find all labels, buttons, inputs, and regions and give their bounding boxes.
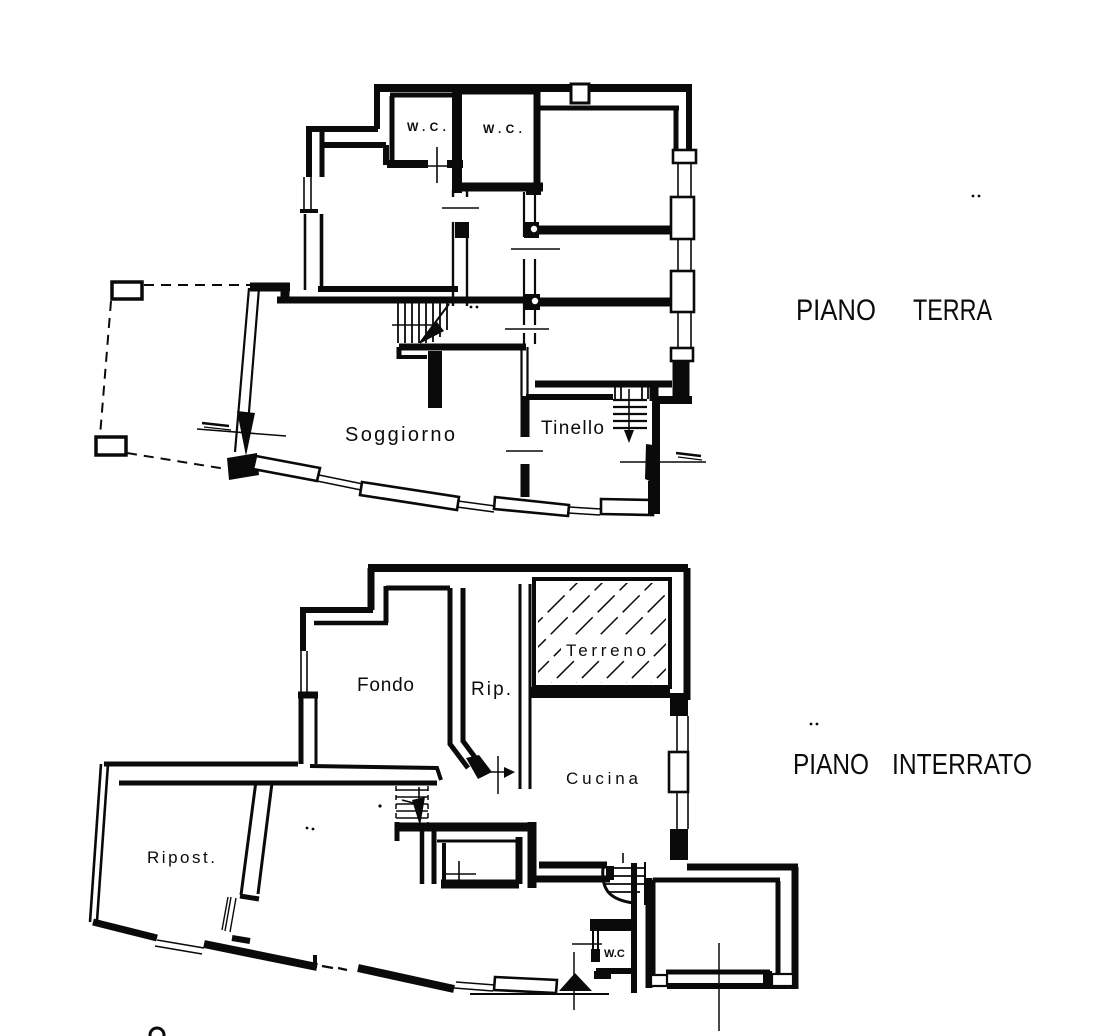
svg-text:Cucina: Cucina <box>566 769 639 788</box>
svg-text:Ripost.: Ripost. <box>147 848 215 867</box>
svg-text:INTERRATO: INTERRATO <box>892 749 1032 781</box>
svg-text:PIANO: PIANO <box>793 749 869 781</box>
svg-text:W.C: W.C <box>604 948 625 960</box>
svg-text:Tinello: Tinello <box>541 418 604 439</box>
svg-text:TERRA: TERRA <box>913 294 992 327</box>
svg-text:Rip.: Rip. <box>471 679 511 700</box>
svg-text:PIANO: PIANO <box>796 294 876 327</box>
svg-text:Fondo: Fondo <box>357 675 414 696</box>
